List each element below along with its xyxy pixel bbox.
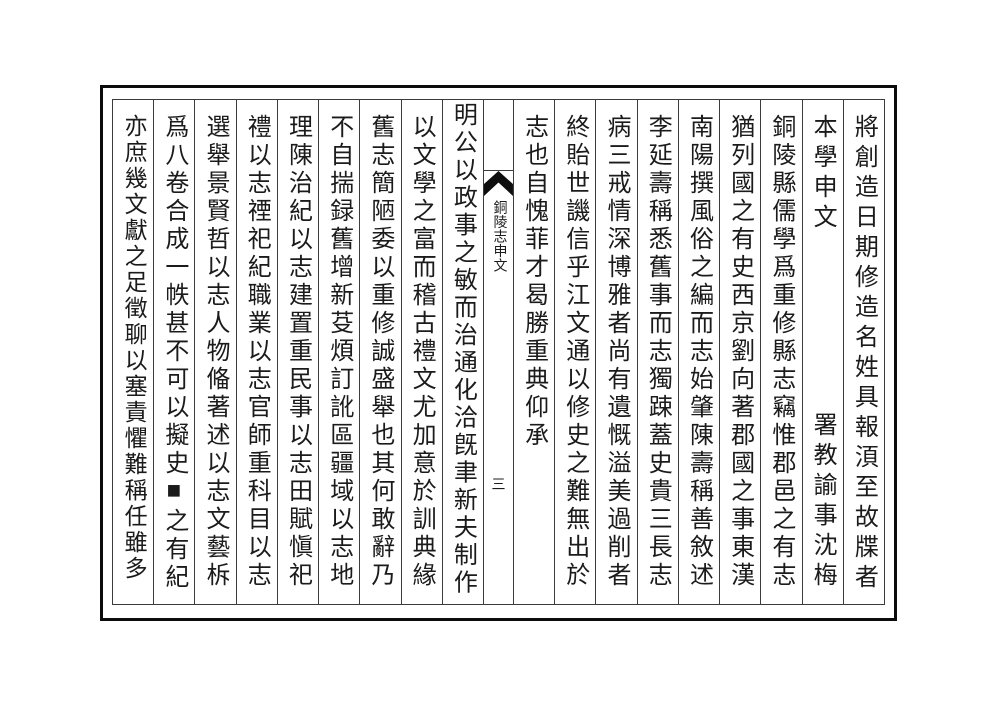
column-text: 猶列國之有史西京劉向著郡國之事東漢	[723, 100, 758, 604]
text-column: 猶列國之有史西京劉向著郡國之事東漢	[719, 100, 760, 604]
text-column: 南陽撰風俗之編而志始肇陳壽稱善敘述	[678, 100, 719, 604]
text-column: 銅陵縣儒學爲重修縣志竊惟郡邑之有志	[760, 100, 801, 604]
signature-column: 本學申文 署教諭事沈梅	[802, 100, 843, 604]
text-column: 以文學之富而稽古禮文尤加意於訓典緣	[401, 100, 442, 604]
fold-divider-line	[484, 170, 513, 171]
text-column: 李延壽稱悉舊事而志獨踈蓋史貴三長志	[637, 100, 678, 604]
column-text: 以文學之富而稽古禮文尤加意於訓典緣	[404, 100, 439, 604]
column-text: 終貽世譏信乎江文通以修史之難無出於	[558, 100, 593, 604]
column-text: 理陳治紀以志建置重民事以志田賦愼祀	[280, 100, 315, 604]
text-column: 亦庶幾文獻之足徵聊以塞責懼難稱任雖多	[113, 100, 153, 604]
column-text: 將創造日期修造名姓具報湏至故牒者	[846, 100, 881, 604]
column-text: 病三戒情深博雅者尚有遺慨溢美過削者	[599, 100, 634, 604]
text-column: 將創造日期修造名姓具報湏至故牒者	[843, 100, 884, 604]
page-number: 三	[491, 474, 505, 494]
column-text: 志也自愧菲才曷勝重典仰承	[517, 100, 552, 604]
column-text: 爲八卷合成一帙甚不可以擬史■之有紀	[157, 100, 192, 604]
column-grid: 亦庶幾文獻之足徵聊以塞責懼難稱任雖多 爲八卷合成一帙甚不可以擬史■之有紀 選舉景…	[112, 99, 885, 605]
text-column: 終貽世譏信乎江文通以修史之難無出於	[554, 100, 595, 604]
text-column: 不自揣録舊增新芟煩訂訛區疆域以志地	[318, 100, 359, 604]
text-column: 病三戒情深博雅者尚有遺慨溢美過削者	[595, 100, 636, 604]
column-text: 舊志簡陋委以重修誠盛舉也其何敢辭乃	[363, 100, 398, 604]
column-text: 銅陵縣儒學爲重修縣志竊惟郡邑之有志	[764, 100, 799, 604]
fold-title: 銅陵志申文	[488, 200, 508, 273]
column-text: 李延壽稱悉舊事而志獨踈蓋史貴三長志	[640, 100, 675, 604]
text-column: 理陳治紀以志建置重民事以志田賦愼祀	[277, 100, 318, 604]
column-text: 明公以政事之敏而治通化洽旣聿新夫制作	[445, 100, 480, 604]
text-column: 禮以志禋祀紀職業以志官師重科目以志	[236, 100, 277, 604]
column-text: 亦庶幾文獻之足徵聊以塞責懼難稱任雖多	[116, 100, 150, 604]
text-column-elevated: 明公以政事之敏而治通化洽旣聿新夫制作	[442, 100, 483, 604]
text-column: 志也自愧菲才曷勝重典仰承	[513, 100, 554, 604]
text-column: 選舉景賢哲以志人物偹著述以志文藝柝	[194, 100, 235, 604]
column-text: 禮以志禋祀紀職業以志官師重科目以志	[239, 100, 274, 604]
scanned-book-page: 亦庶幾文獻之足徵聊以塞責懼難稱任雖多 爲八卷合成一帙甚不可以擬史■之有紀 選舉景…	[0, 0, 1000, 706]
document-heading: 本學申文	[805, 114, 840, 234]
signature-text: 署教諭事沈梅	[805, 412, 840, 592]
column-text: 南陽撰風俗之編而志始肇陳壽稱善敘述	[681, 100, 716, 604]
fishtail-icon	[484, 171, 513, 196]
fold-column: 銅陵志申文 三	[483, 100, 513, 604]
text-column: 舊志簡陋委以重修誠盛舉也其何敢辭乃	[359, 100, 400, 604]
column-text: 不自揣録舊增新芟煩訂訛區疆域以志地	[322, 100, 357, 604]
page-frame: 亦庶幾文獻之足徵聊以塞責懼難稱任雖多 爲八卷合成一帙甚不可以擬史■之有紀 選舉景…	[100, 85, 897, 621]
text-column: 爲八卷合成一帙甚不可以擬史■之有紀	[153, 100, 194, 604]
column-text: 選舉景賢哲以志人物偹著述以志文藝柝	[198, 100, 233, 604]
